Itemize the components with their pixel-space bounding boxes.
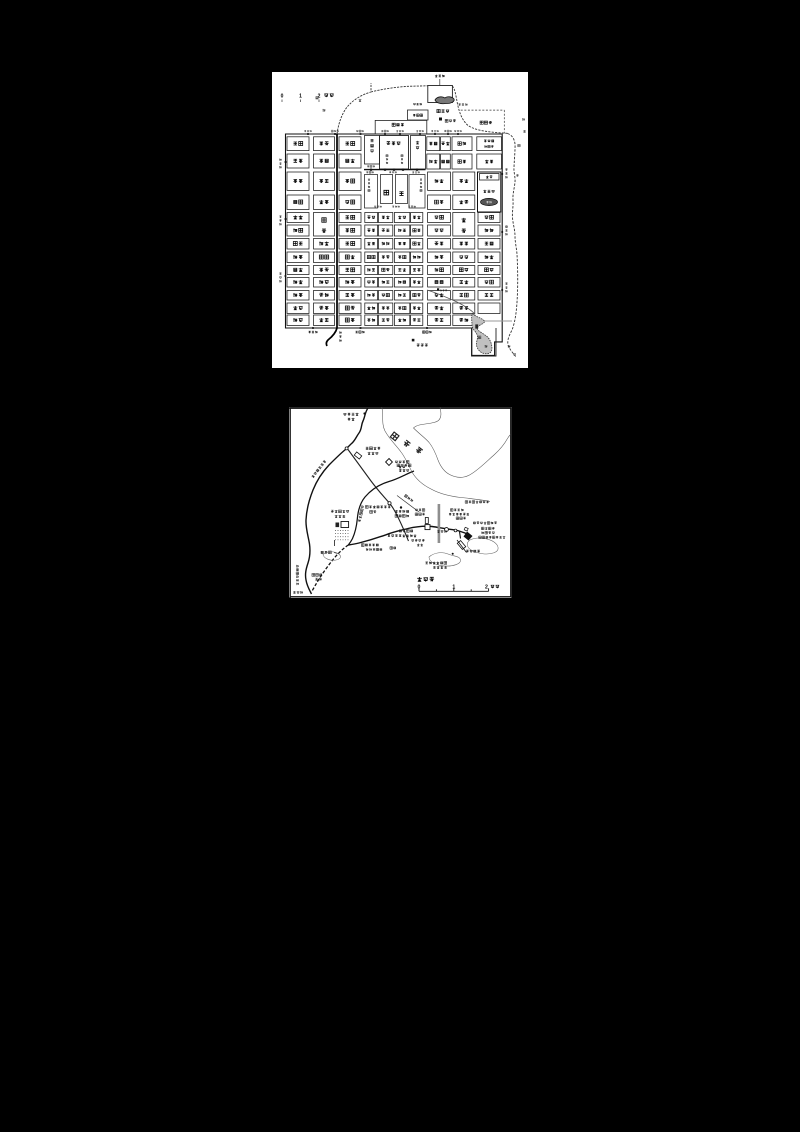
svg-text:1: 1 xyxy=(299,94,302,100)
svg-text:0: 0 xyxy=(281,94,284,100)
svg-text:2: 2 xyxy=(485,585,488,591)
